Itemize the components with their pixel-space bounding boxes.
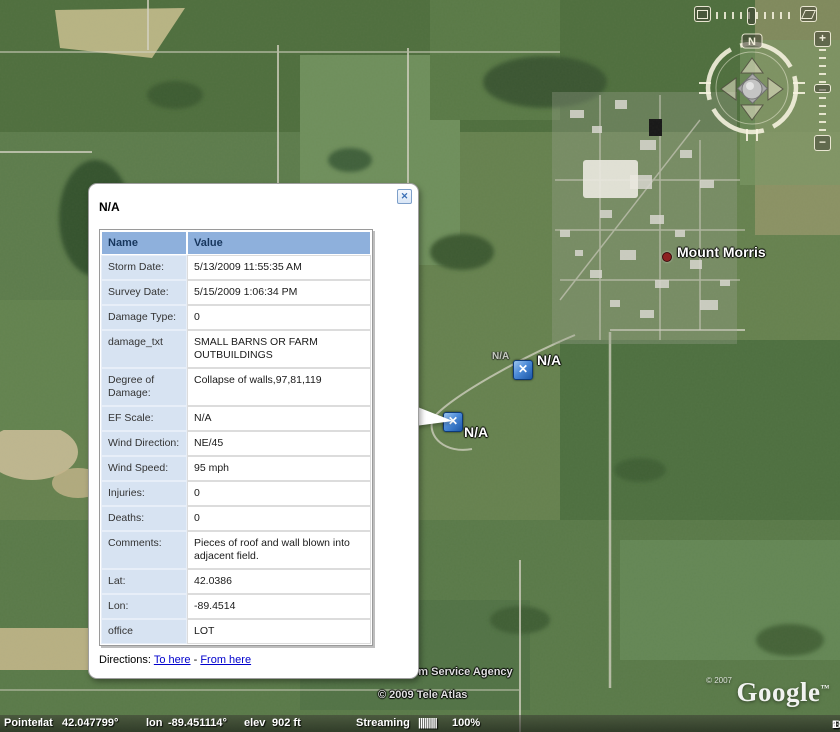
- row-value-cell: 5/13/2009 11:55:35 AM: [188, 256, 370, 279]
- pan-down-arrow[interactable]: [741, 105, 763, 120]
- pan-right-arrow[interactable]: [768, 78, 783, 100]
- town-dot-icon[interactable]: [662, 252, 672, 262]
- placemark-faint-label: N/A: [492, 351, 509, 362]
- elev-label: elev: [244, 717, 265, 729]
- tilt-slider-handle[interactable]: [747, 7, 756, 25]
- google-trademark: ™: [821, 683, 831, 693]
- lon-value: -89.451114°: [168, 717, 227, 729]
- table-row: Injuries:0: [102, 482, 370, 505]
- table-header-row: Name Value: [102, 232, 370, 254]
- tilt-ground-view-button[interactable]: [800, 6, 817, 22]
- popup-table-body: Storm Date:5/13/2009 11:55:35 AMSurvey D…: [102, 256, 370, 643]
- row-value-cell: 0: [188, 306, 370, 329]
- row-name-cell: damage_txt: [102, 331, 186, 367]
- row-name-cell: Lon:: [102, 595, 186, 618]
- google-copyright: © 2007: [706, 676, 732, 685]
- row-name-cell: Wind Speed:: [102, 457, 186, 480]
- row-value-cell: 95 mph: [188, 457, 370, 480]
- info-balloon: N/A ✕ Name Value Storm Date:5/13/2009 11…: [88, 183, 419, 679]
- row-value-cell: 5/15/2009 1:06:34 PM: [188, 281, 370, 304]
- lat-value: 42.047799°: [62, 717, 118, 729]
- row-name-cell: Comments:: [102, 532, 186, 568]
- table-row: Lat:42.0386: [102, 570, 370, 593]
- table-row: Wind Direction:NE/45: [102, 432, 370, 455]
- row-name-cell: Degree of Damage:: [102, 369, 186, 405]
- row-value-cell: -89.4514: [188, 595, 370, 618]
- header-value: Value: [188, 232, 370, 254]
- streaming-bars-icon: |||||||||: [418, 717, 437, 729]
- compass-center-knob[interactable]: [738, 74, 768, 104]
- row-value-cell: LOT: [188, 620, 370, 643]
- row-value-cell: 0: [188, 482, 370, 505]
- tilt-slider-track[interactable]: [716, 12, 796, 19]
- row-value-cell: 42.0386: [188, 570, 370, 593]
- directions-to-here-link[interactable]: To here: [154, 654, 191, 666]
- tilt-top-view-button[interactable]: [694, 6, 711, 22]
- google-logo: Google™: [737, 677, 831, 708]
- compass-north-label: N: [748, 36, 756, 48]
- table-row: Deaths:0: [102, 507, 370, 530]
- attribute-table: Name Value Storm Date:5/13/2009 11:55:35…: [99, 229, 373, 646]
- streaming-percent: 100%: [452, 717, 480, 729]
- row-name-cell: Lat:: [102, 570, 186, 593]
- row-name-cell: office: [102, 620, 186, 643]
- row-name-cell: Deaths:: [102, 507, 186, 530]
- row-name-cell: Survey Date:: [102, 281, 186, 304]
- pan-left-arrow[interactable]: [721, 78, 736, 100]
- pan-up-arrow[interactable]: [741, 58, 763, 73]
- row-name-cell: Wind Direction:: [102, 432, 186, 455]
- row-name-cell: Storm Date:: [102, 256, 186, 279]
- directions-from-here-link[interactable]: From here: [200, 654, 251, 666]
- row-value-cell: SMALL BARNS OR FARM OUTBUILDINGS: [188, 331, 370, 367]
- flat-view-icon: [697, 10, 708, 19]
- table-row: officeLOT: [102, 620, 370, 643]
- row-value-cell: Pieces of roof and wall blown into adjac…: [188, 532, 370, 568]
- table-row: Comments:Pieces of roof and wall blown i…: [102, 532, 370, 568]
- table-row: Wind Speed:95 mph: [102, 457, 370, 480]
- directions-row: Directions: To here - From here: [99, 654, 251, 666]
- attribution-imagery: rm Service Agency: [414, 666, 513, 678]
- town-label: Mount Morris: [677, 244, 766, 260]
- placemark-upper-label: N/A: [537, 352, 561, 368]
- elev-value: 902 ft: [272, 717, 301, 729]
- row-value-cell: 0: [188, 507, 370, 530]
- table-row: Storm Date:5/13/2009 11:55:35 AM: [102, 256, 370, 279]
- row-name-cell: Damage Type:: [102, 306, 186, 329]
- header-name: Name: [102, 232, 186, 254]
- google-earth-window: N/A ✕ N/A ✕ N/A Mount Morris rm Service …: [0, 0, 840, 732]
- row-name-cell: Injuries:: [102, 482, 186, 505]
- table-row: Survey Date:5/15/2009 1:06:34 PM: [102, 281, 370, 304]
- table-row: Lon:-89.4514: [102, 595, 370, 618]
- compass-north-button[interactable]: N: [742, 34, 762, 48]
- directions-separator: -: [194, 654, 198, 666]
- zoom-in-button[interactable]: +: [814, 31, 831, 47]
- balloon-tail: [414, 404, 454, 430]
- close-icon[interactable]: ✕: [397, 189, 412, 204]
- tilt-slider: [694, 6, 818, 25]
- zoom-slider-handle[interactable]: [814, 84, 831, 93]
- google-logo-text: Google: [737, 677, 821, 707]
- status-bar: Pointer lat 42.047799° lon -89.451114° e…: [0, 715, 840, 732]
- streaming-label: Streaming: [356, 717, 410, 729]
- balloon-title: N/A: [99, 200, 120, 214]
- tilt-view-icon: [801, 10, 816, 19]
- placemark-lower-label: N/A: [464, 424, 488, 440]
- row-name-cell: EF Scale:: [102, 407, 186, 430]
- lat-label: lat: [40, 717, 53, 729]
- table-row: EF Scale:N/A: [102, 407, 370, 430]
- row-value-cell: NE/45: [188, 432, 370, 455]
- table-row: Damage Type:0: [102, 306, 370, 329]
- zoom-out-button[interactable]: −: [814, 135, 831, 151]
- table-row: damage_txtSMALL BARNS OR FARM OUTBUILDIN…: [102, 331, 370, 367]
- pointer-label: Pointer: [4, 717, 42, 729]
- placemark-icon-upper[interactable]: ✕: [513, 360, 533, 380]
- row-value-cell: N/A: [188, 407, 370, 430]
- row-value-cell: Collapse of walls,97,81,119: [188, 369, 370, 405]
- attribution-tele-atlas: © 2009 Tele Atlas: [378, 689, 467, 701]
- eye-alt-value: 18631 ft: [832, 719, 840, 731]
- directions-label: Directions:: [99, 654, 151, 666]
- lon-label: lon: [146, 717, 163, 729]
- table-row: Degree of Damage:Collapse of walls,97,81…: [102, 369, 370, 405]
- compass-control: N: [697, 33, 807, 143]
- zoom-slider: + −: [813, 31, 832, 151]
